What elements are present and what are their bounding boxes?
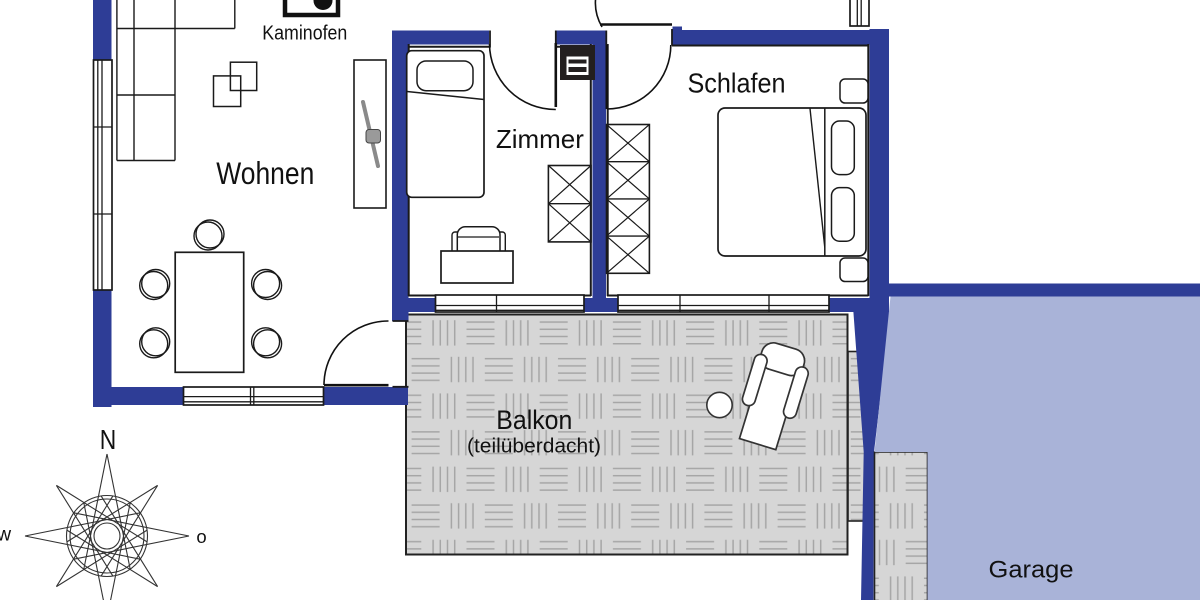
svg-text:(teilüberdacht): (teilüberdacht) bbox=[467, 436, 601, 458]
svg-text:Garage: Garage bbox=[989, 557, 1074, 584]
svg-text:Wohnen: Wohnen bbox=[216, 155, 314, 191]
svg-text:Schlafen: Schlafen bbox=[688, 67, 786, 98]
svg-text:Balkon: Balkon bbox=[496, 405, 572, 435]
svg-text:Zimmer: Zimmer bbox=[496, 126, 584, 154]
svg-text:Kaminofen: Kaminofen bbox=[262, 23, 347, 45]
svg-text:N: N bbox=[100, 424, 117, 455]
svg-text:o: o bbox=[196, 526, 206, 547]
svg-text:w: w bbox=[0, 524, 12, 546]
